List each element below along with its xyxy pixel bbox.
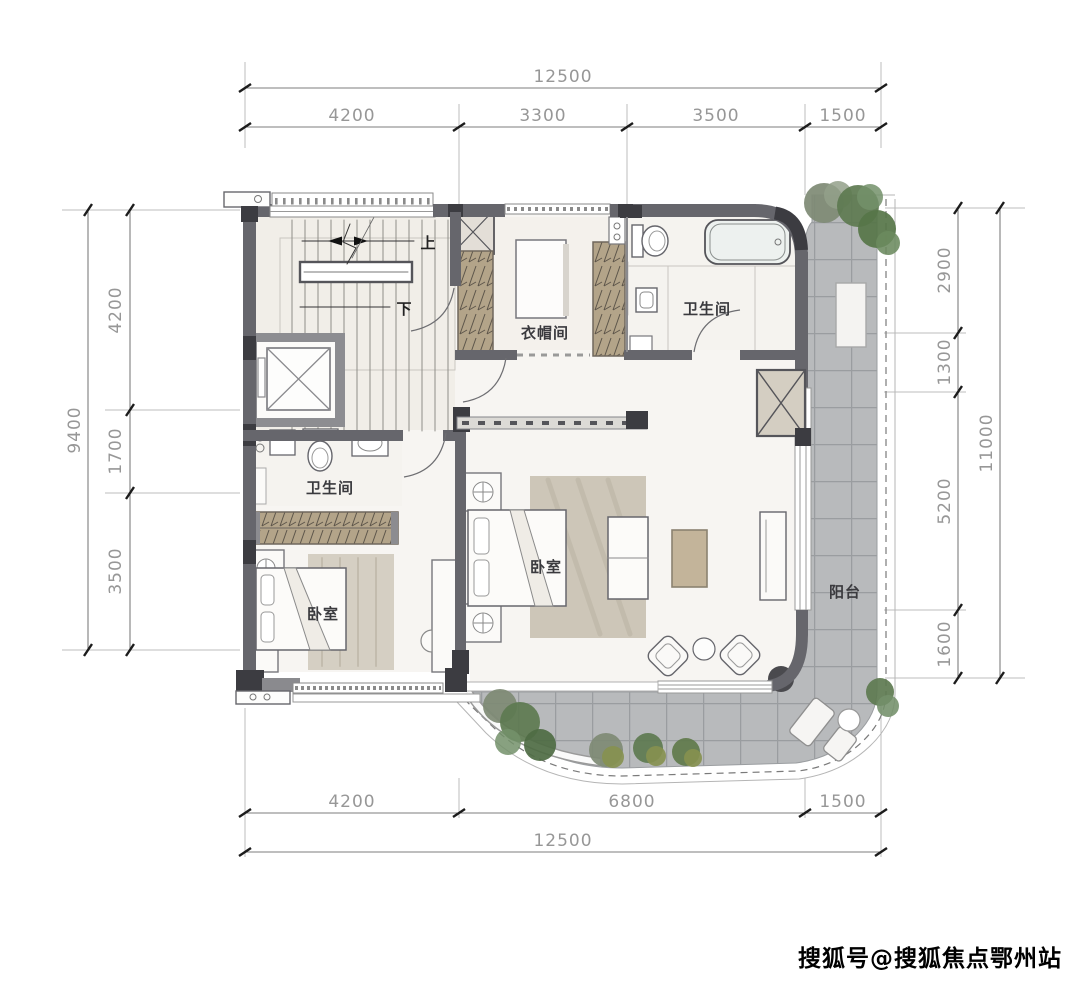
label-stair-down: 下	[396, 300, 411, 318]
dim-left-seg-3: 3500	[106, 547, 126, 594]
window-bottom-master	[658, 681, 772, 693]
wardrobe-right	[593, 242, 625, 356]
round-side-table	[693, 638, 715, 660]
label-bedroom-master: 卧室	[530, 558, 562, 576]
hall-wardrobe	[253, 512, 398, 544]
bathtub	[705, 220, 790, 264]
shaft-col-dark	[795, 428, 811, 446]
dim-top-seg-3: 3500	[692, 106, 739, 126]
closet-island-shadow	[563, 244, 569, 316]
sill-box-topleft	[224, 192, 270, 207]
wall-top-mid1	[433, 204, 505, 217]
dim-left-seg-1: 4200	[106, 286, 126, 333]
toilet-left-bowl	[308, 441, 332, 471]
bath-shower-tray	[630, 336, 652, 352]
master-sliding-track	[457, 417, 647, 429]
elevator	[248, 333, 345, 427]
wardrobe-left	[458, 251, 493, 354]
sill-box-bottomleft	[236, 691, 290, 704]
label-stair-up: 上	[420, 234, 435, 252]
dim-bottom-seg-1: 4200	[328, 792, 375, 812]
label-bathroom-left: 卫生间	[306, 479, 354, 497]
wall-b-vertical	[455, 407, 466, 672]
wall-stair-closet	[450, 212, 461, 286]
dim-top-seg-1: 4200	[328, 106, 375, 126]
label-bathroom-top: 卫生间	[683, 300, 731, 318]
wall-bl-dark	[236, 670, 264, 692]
dim-top-overall: 12500	[533, 67, 592, 87]
dim-right-seg-3: 5200	[935, 477, 955, 524]
sill-master-bottom	[465, 682, 658, 691]
bushes-bottom	[589, 733, 702, 768]
floorplan-drawing: 12500 4200 3300 3500 1500 4200 6800 1500…	[0, 0, 1080, 981]
watermark-text: 搜狐号@搜狐焦点鄂州站	[798, 945, 1062, 972]
bed2-pillow-2	[261, 612, 274, 642]
tv-console	[760, 512, 786, 600]
elevator-call-panel	[258, 358, 265, 397]
balcony-side-table	[838, 709, 860, 731]
dim-right-seg-2: 1300	[935, 338, 955, 385]
sill-long-bottom	[293, 694, 480, 702]
wall-left-col4	[243, 540, 256, 564]
master-track-col-right	[626, 411, 648, 429]
master-pouf	[672, 530, 707, 587]
label-cloakroom: 衣帽间	[521, 324, 569, 342]
bed2-pillow-1	[261, 575, 274, 605]
wall-under-stairs	[243, 430, 403, 441]
label-balcony: 阳台	[829, 583, 861, 601]
hall-wardrobe-cap-right	[391, 512, 398, 544]
dim-left-overall: 9400	[65, 406, 85, 453]
wall-f-top	[620, 205, 642, 218]
master-pillow-2	[474, 560, 489, 596]
wall-left-col2	[243, 336, 256, 360]
dim-right-seg-1: 2900	[935, 246, 955, 293]
label-bedroom-second: 卧室	[307, 605, 339, 623]
wall-left-col1	[241, 206, 258, 222]
wall-b-col-bottom	[452, 650, 469, 674]
wall-bath-bottom1	[624, 350, 692, 360]
dim-bottom-overall: 12500	[533, 831, 592, 851]
dim-bottom-seg-3: 1500	[819, 792, 866, 812]
dim-left-seg-2: 1700	[106, 427, 126, 474]
dim-top-seg-4: 1500	[819, 106, 866, 126]
dim-right-seg-4: 1600	[935, 620, 955, 667]
closet-island	[516, 240, 566, 318]
dim-bottom-seg-2: 6800	[608, 792, 655, 812]
dim-top-seg-2: 3300	[519, 106, 566, 126]
window-comb-band	[272, 193, 433, 207]
balcony-lounger-top	[836, 283, 866, 347]
wall-bath-bottom2	[740, 350, 802, 360]
master-pillow-1	[474, 518, 489, 554]
wall-closet-bottom	[455, 350, 517, 360]
dim-right-overall: 11000	[977, 413, 997, 472]
floorplan-page: 12500 4200 3300 3500 1500 4200 6800 1500…	[0, 0, 1080, 981]
toilet-top-bowl	[642, 226, 668, 256]
